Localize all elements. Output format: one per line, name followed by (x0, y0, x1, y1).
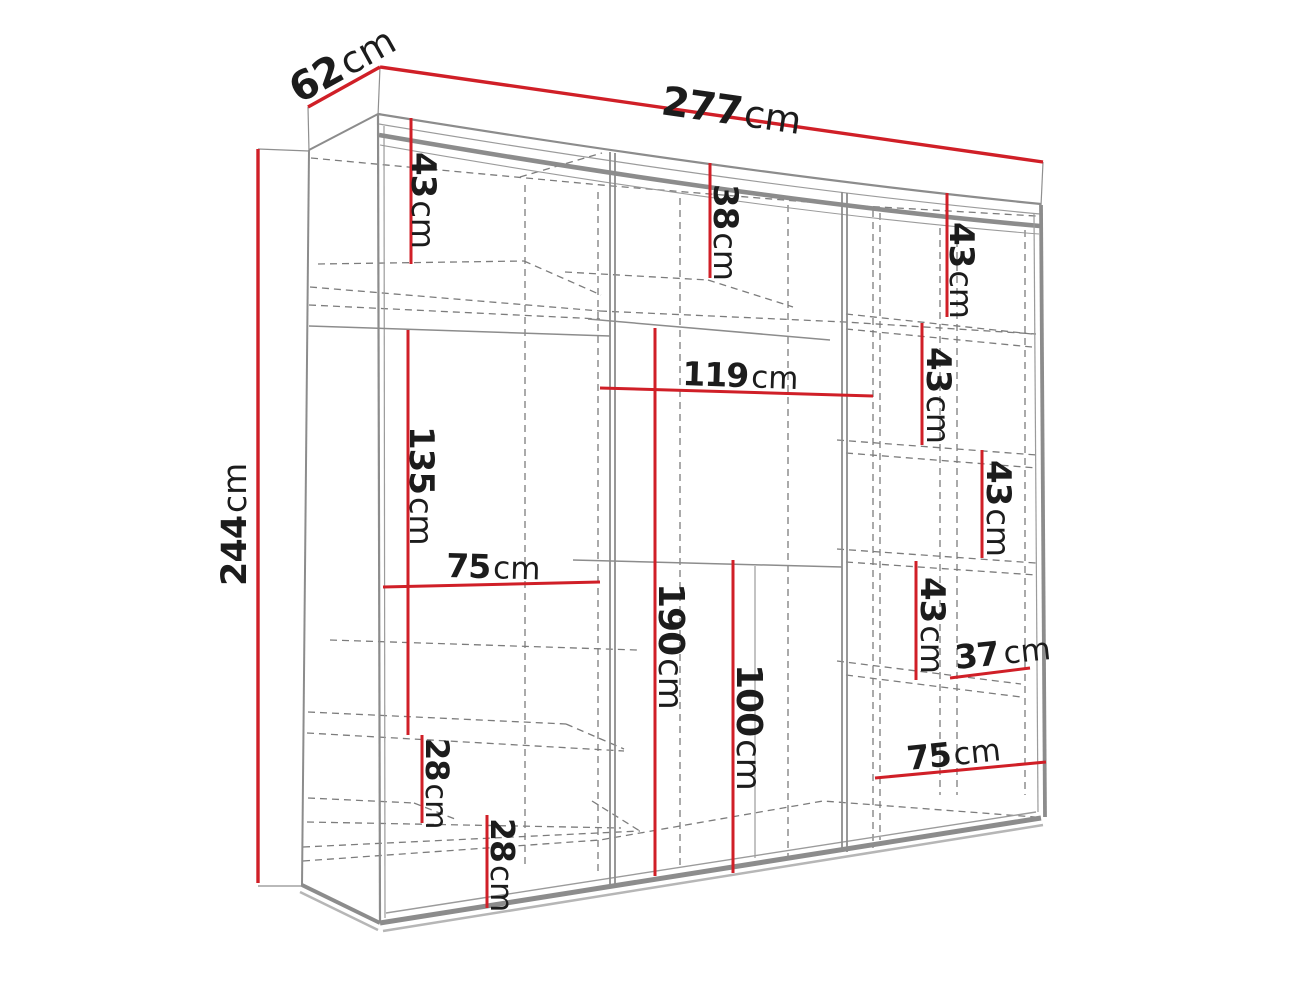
dim-label-right-43c: 43cm (978, 460, 1018, 557)
middle-rail-top (588, 319, 830, 340)
dim-label-width: 277cm (659, 78, 805, 144)
front-left-edge (378, 114, 380, 923)
mid-top-shelf-dashed (565, 272, 708, 280)
dim-label-right-43a: 43cm (941, 222, 981, 319)
floor-front-dashed (303, 831, 640, 847)
dim-label-right-43d: 43cm (912, 577, 952, 674)
left-low-shelf1-back-dashed (307, 733, 624, 751)
floor-back-dashed (303, 801, 1035, 861)
back-left-edge (302, 150, 309, 886)
dim-label-mid-38: 38cm (705, 184, 745, 281)
bottom-left-depth-edge (302, 885, 380, 923)
middle-rail-low (573, 560, 842, 567)
top-left-depth-edge (309, 114, 378, 150)
right-inner-line (1034, 214, 1038, 812)
dim-label-mid-119: 119cm (682, 354, 799, 397)
dim-label-left-75: 75cm (446, 546, 541, 587)
left-low-shelf1-dashed (308, 712, 566, 724)
front-left-inner-line (384, 126, 385, 918)
ext-width-left (378, 67, 380, 116)
left-shelf1-back-dashed (310, 287, 600, 311)
dim-label-depth: 62cm (282, 17, 404, 112)
bottom-left-shadow (300, 892, 378, 930)
left-mid-shelf-dashed (330, 640, 637, 650)
dim-label-mid-100: 100cm (728, 664, 769, 791)
diagram-canvas: 277cm 62cm 244cm 43cm 38cm 43cm 43cm 43c… (0, 0, 1310, 983)
right-shelf1-back-dashed (846, 329, 1032, 347)
dim-label-height: 244cm (215, 463, 255, 586)
right-shelf4-back-dashed (846, 675, 1021, 697)
dim-label-left-28-upper: 28cm (418, 738, 456, 829)
right-shelf1-dashed (846, 314, 1032, 334)
left-shelf1-diagonal (524, 261, 601, 295)
bottom-front-edge (380, 818, 1041, 923)
ext-height-top (258, 149, 309, 151)
bottom-shadow (383, 825, 1043, 931)
dimension-labels: 277cm 62cm 244cm 43cm 38cm 43cm 43cm 43c… (215, 17, 1053, 912)
right-shelf3-back-dashed (846, 562, 1036, 575)
dim-label-left-43: 43cm (403, 152, 443, 249)
wardrobe-dimension-diagram: 277cm 62cm 244cm 43cm 38cm 43cm 43cm 43c… (0, 0, 1310, 983)
left-shelf1-front-dashed (318, 261, 524, 264)
dim-label-mid-190: 190cm (650, 583, 691, 710)
left-low-shelf2-dashed (308, 798, 414, 803)
dim-label-left-28-lower: 28cm (483, 818, 522, 912)
right-edge (1041, 205, 1045, 817)
ext-depth (308, 107, 309, 151)
dim-label-right-43b: 43cm (918, 347, 958, 444)
mid-top-shelf-diagonal (708, 280, 793, 307)
dim-label-left-135: 135cm (401, 426, 441, 546)
dimension-lines (258, 67, 1046, 908)
ext-width-right (1041, 162, 1043, 206)
left-rail (309, 326, 610, 336)
left-shelf2-dashed (309, 305, 600, 319)
dim-line-left-75 (383, 582, 600, 587)
left-low-shelf2-back-dashed (307, 822, 621, 828)
